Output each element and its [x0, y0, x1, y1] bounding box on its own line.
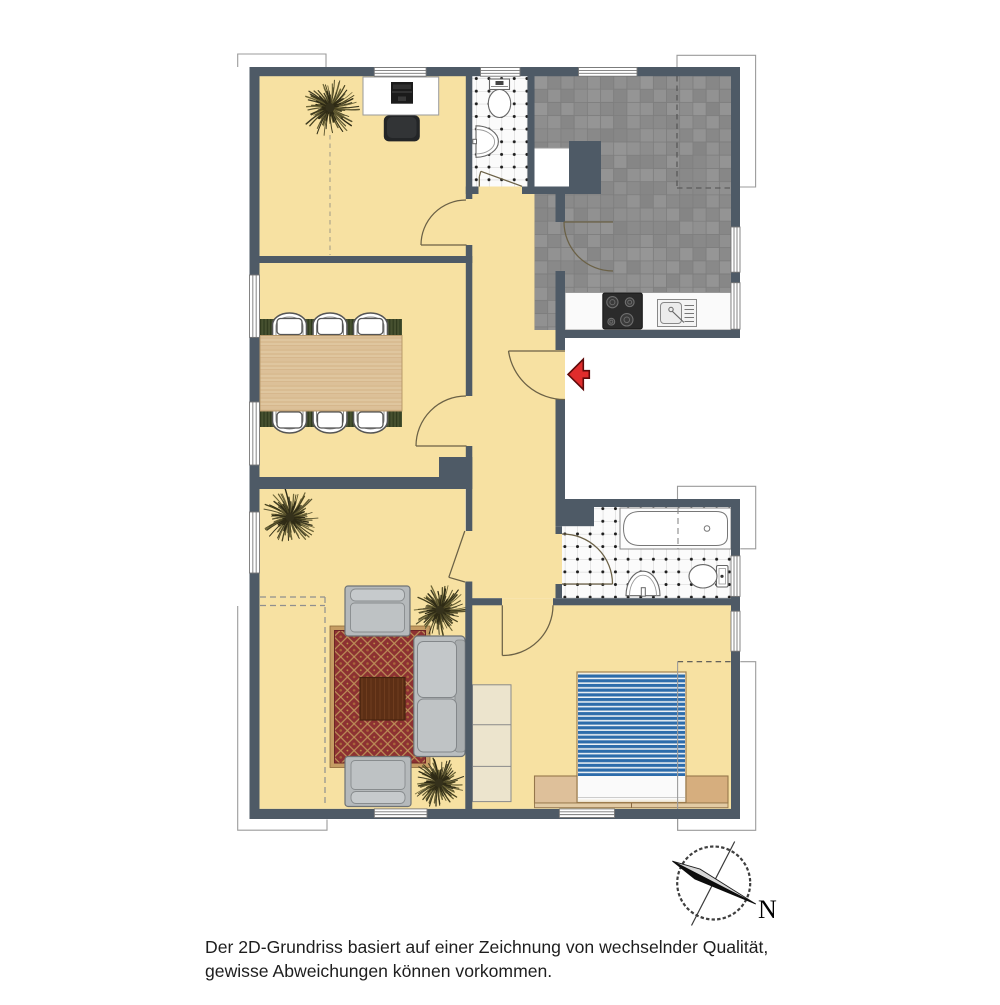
svg-text:N: N [758, 895, 777, 924]
